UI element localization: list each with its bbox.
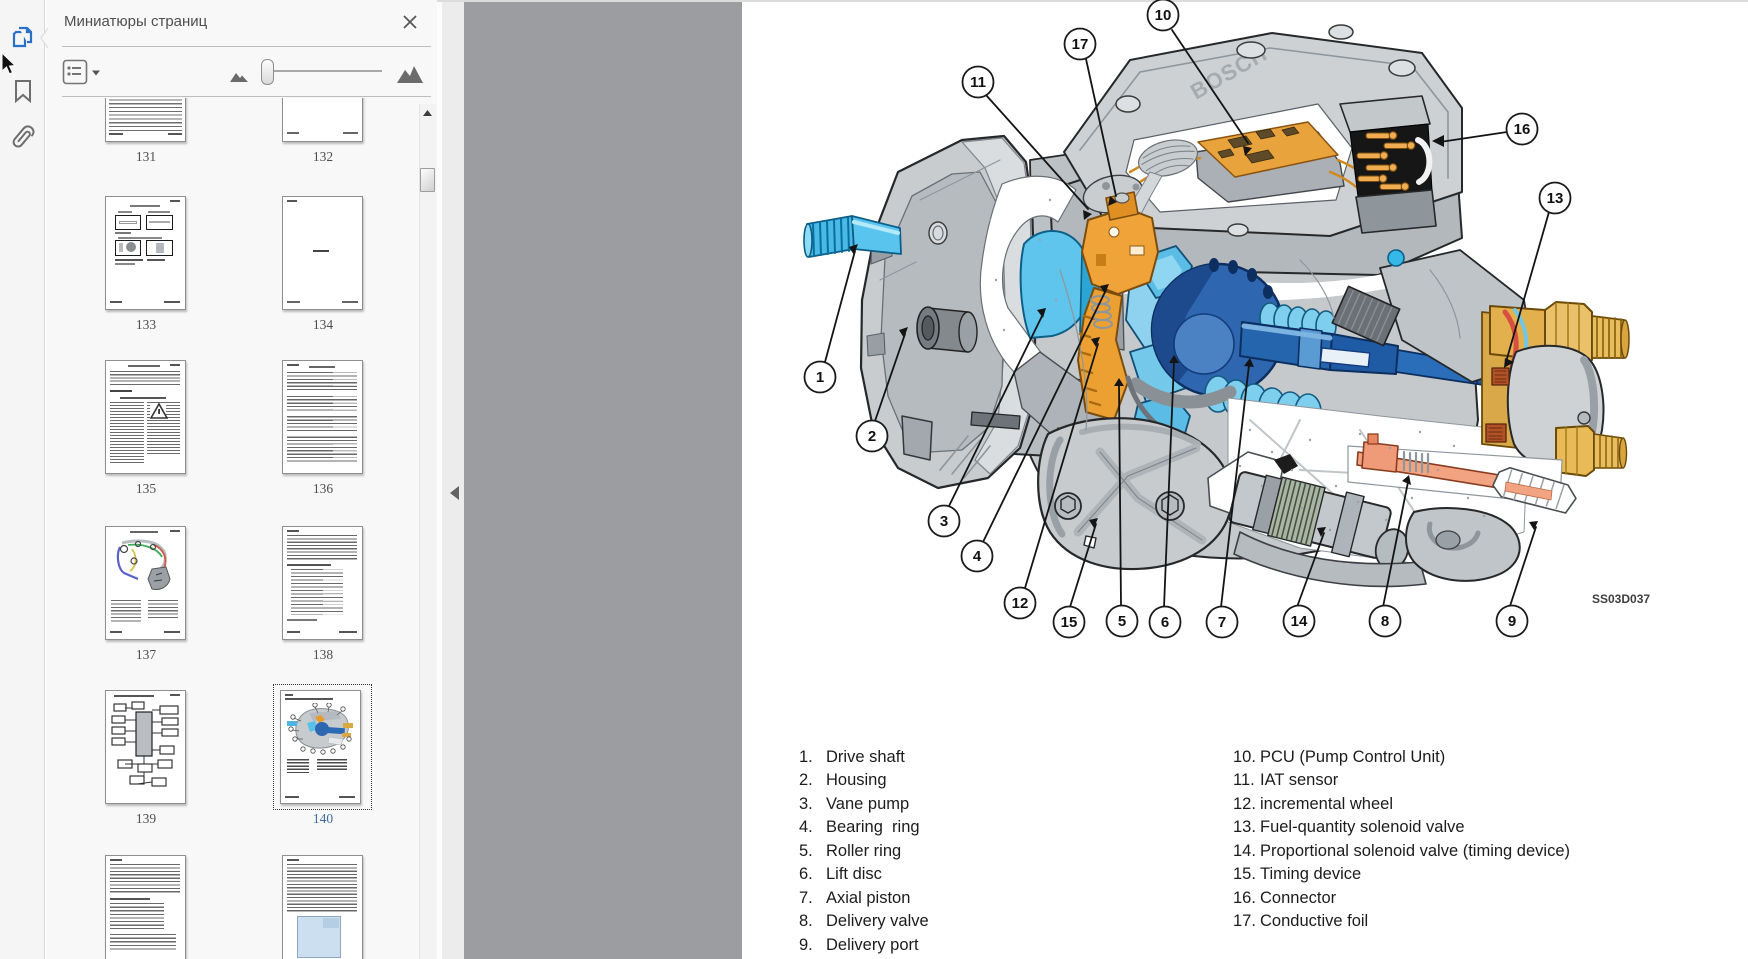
- svg-text:8.: 8.: [799, 912, 813, 930]
- svg-text:3: 3: [940, 513, 948, 530]
- svg-text:IAT sensor: IAT sensor: [1260, 771, 1339, 789]
- svg-text:Connector: Connector: [1260, 889, 1337, 907]
- svg-text:8: 8: [1381, 613, 1389, 630]
- svg-text:3.: 3.: [799, 795, 813, 813]
- svg-text:6: 6: [1161, 614, 1169, 631]
- svg-text:7: 7: [1218, 614, 1226, 631]
- svg-text:Drive shaft: Drive shaft: [826, 748, 905, 766]
- svg-text:2: 2: [868, 428, 876, 445]
- svg-text:Fuel-quantity solenoid valve: Fuel-quantity solenoid valve: [1260, 818, 1465, 836]
- svg-text:7.: 7.: [799, 889, 813, 907]
- svg-text:11: 11: [970, 74, 986, 91]
- svg-text:15.: 15.: [1233, 865, 1256, 883]
- svg-text:Timing device: Timing device: [1260, 865, 1361, 883]
- svg-text:13: 13: [1547, 190, 1564, 207]
- svg-text:16.: 16.: [1233, 889, 1256, 907]
- svg-text:Lift disc: Lift disc: [826, 865, 882, 883]
- svg-text:Delivery valve: Delivery valve: [826, 912, 929, 930]
- svg-text:Vane pump: Vane pump: [826, 795, 909, 813]
- svg-text:17: 17: [1072, 36, 1089, 53]
- svg-text:5: 5: [1118, 613, 1126, 630]
- svg-text:1.: 1.: [799, 748, 813, 766]
- svg-text:Axial piston: Axial piston: [826, 889, 910, 907]
- svg-text:Conductive foil: Conductive foil: [1260, 912, 1368, 930]
- svg-text:incremental wheel: incremental wheel: [1260, 795, 1393, 813]
- svg-text:9.: 9.: [799, 936, 813, 954]
- svg-text:Proportional solenoid valve (t: Proportional solenoid valve (timing devi…: [1260, 842, 1570, 860]
- svg-text:12.: 12.: [1233, 795, 1256, 813]
- svg-text:Bearing ring: Bearing ring: [826, 818, 920, 836]
- svg-text:Housing: Housing: [826, 771, 887, 789]
- svg-text:Roller ring: Roller ring: [826, 842, 901, 860]
- svg-text:2.: 2.: [799, 771, 813, 789]
- svg-text:6.: 6.: [799, 865, 813, 883]
- svg-text:4.: 4.: [799, 818, 813, 836]
- svg-text:15: 15: [1061, 614, 1078, 631]
- svg-text:5.: 5.: [799, 842, 813, 860]
- svg-text:13.: 13.: [1233, 818, 1256, 836]
- svg-text:14: 14: [1291, 613, 1308, 630]
- svg-text:17.: 17.: [1233, 912, 1256, 930]
- svg-text:PCU (Pump Control Unit): PCU (Pump Control Unit): [1260, 748, 1445, 766]
- svg-text:16: 16: [1514, 121, 1531, 138]
- svg-text:10: 10: [1155, 7, 1172, 24]
- svg-text:14.: 14.: [1233, 842, 1256, 860]
- svg-text:12: 12: [1012, 595, 1029, 612]
- svg-text:1: 1: [816, 369, 824, 386]
- svg-text:11.: 11.: [1233, 771, 1255, 789]
- svg-text:10.: 10.: [1233, 748, 1256, 766]
- svg-text:Delivery port: Delivery port: [826, 936, 919, 954]
- svg-text:9: 9: [1508, 613, 1516, 630]
- svg-text:4: 4: [973, 548, 982, 565]
- svg-text:SS03D037: SS03D037: [1592, 592, 1650, 606]
